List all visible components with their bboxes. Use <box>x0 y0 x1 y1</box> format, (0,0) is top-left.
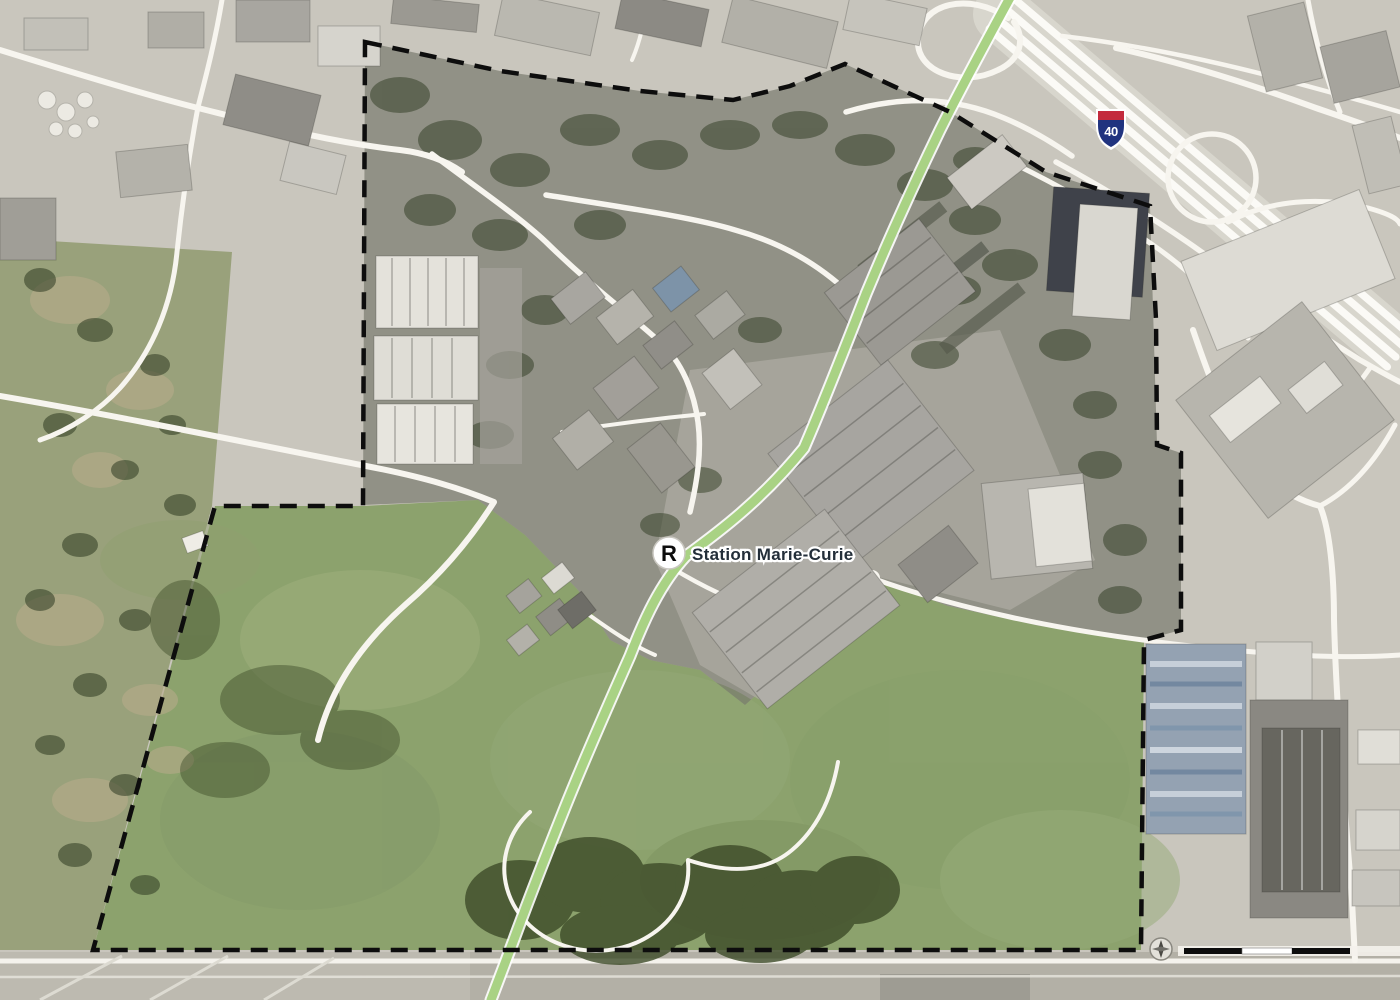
shield-number: 40 <box>1104 124 1118 139</box>
aerial-map: R Station Marie-Curie 40 <box>0 0 1400 1000</box>
station-badge-letter: R <box>661 541 677 566</box>
white-warehouses <box>374 256 478 464</box>
bottom-corridor <box>0 952 1400 1000</box>
station-label: Station Marie-Curie <box>692 545 854 564</box>
map-canvas: R Station Marie-Curie 40 <box>0 0 1400 1000</box>
scale-bar <box>1178 946 1400 956</box>
container-yard <box>1146 644 1246 834</box>
compass-icon <box>1150 938 1172 960</box>
se-warehouse <box>1250 700 1348 918</box>
